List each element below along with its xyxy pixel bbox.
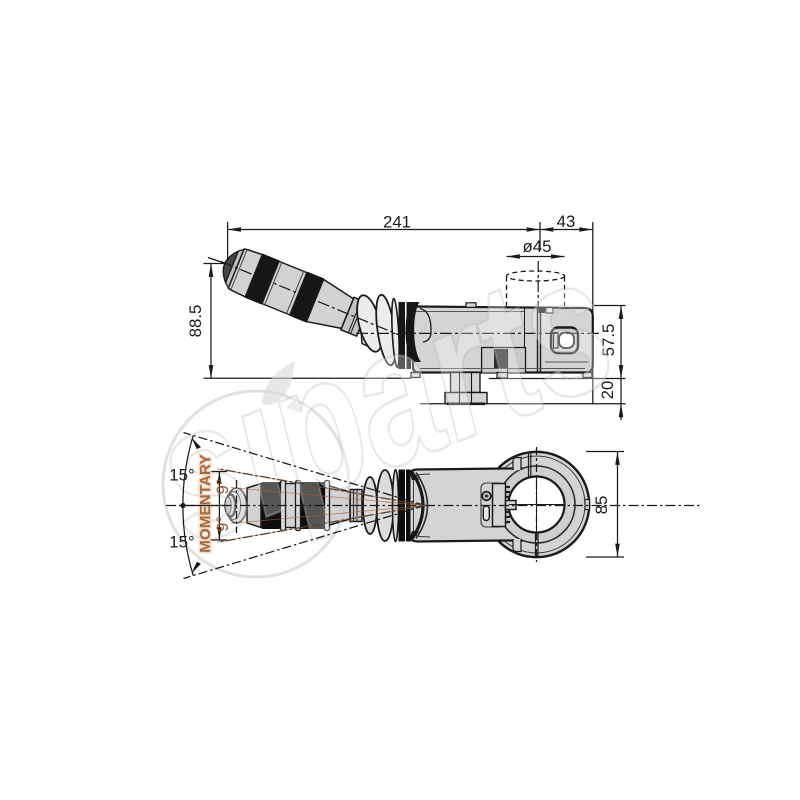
- svg-text:15°: 15°: [169, 533, 194, 552]
- svg-text:MOMENTARY: MOMENTARY: [197, 454, 214, 552]
- svg-text:241: 241: [383, 213, 411, 232]
- svg-text:15°: 15°: [169, 466, 194, 485]
- svg-text:9°: 9°: [214, 479, 232, 495]
- svg-text:9°: 9°: [214, 516, 232, 532]
- svg-text:88.5: 88.5: [186, 305, 205, 338]
